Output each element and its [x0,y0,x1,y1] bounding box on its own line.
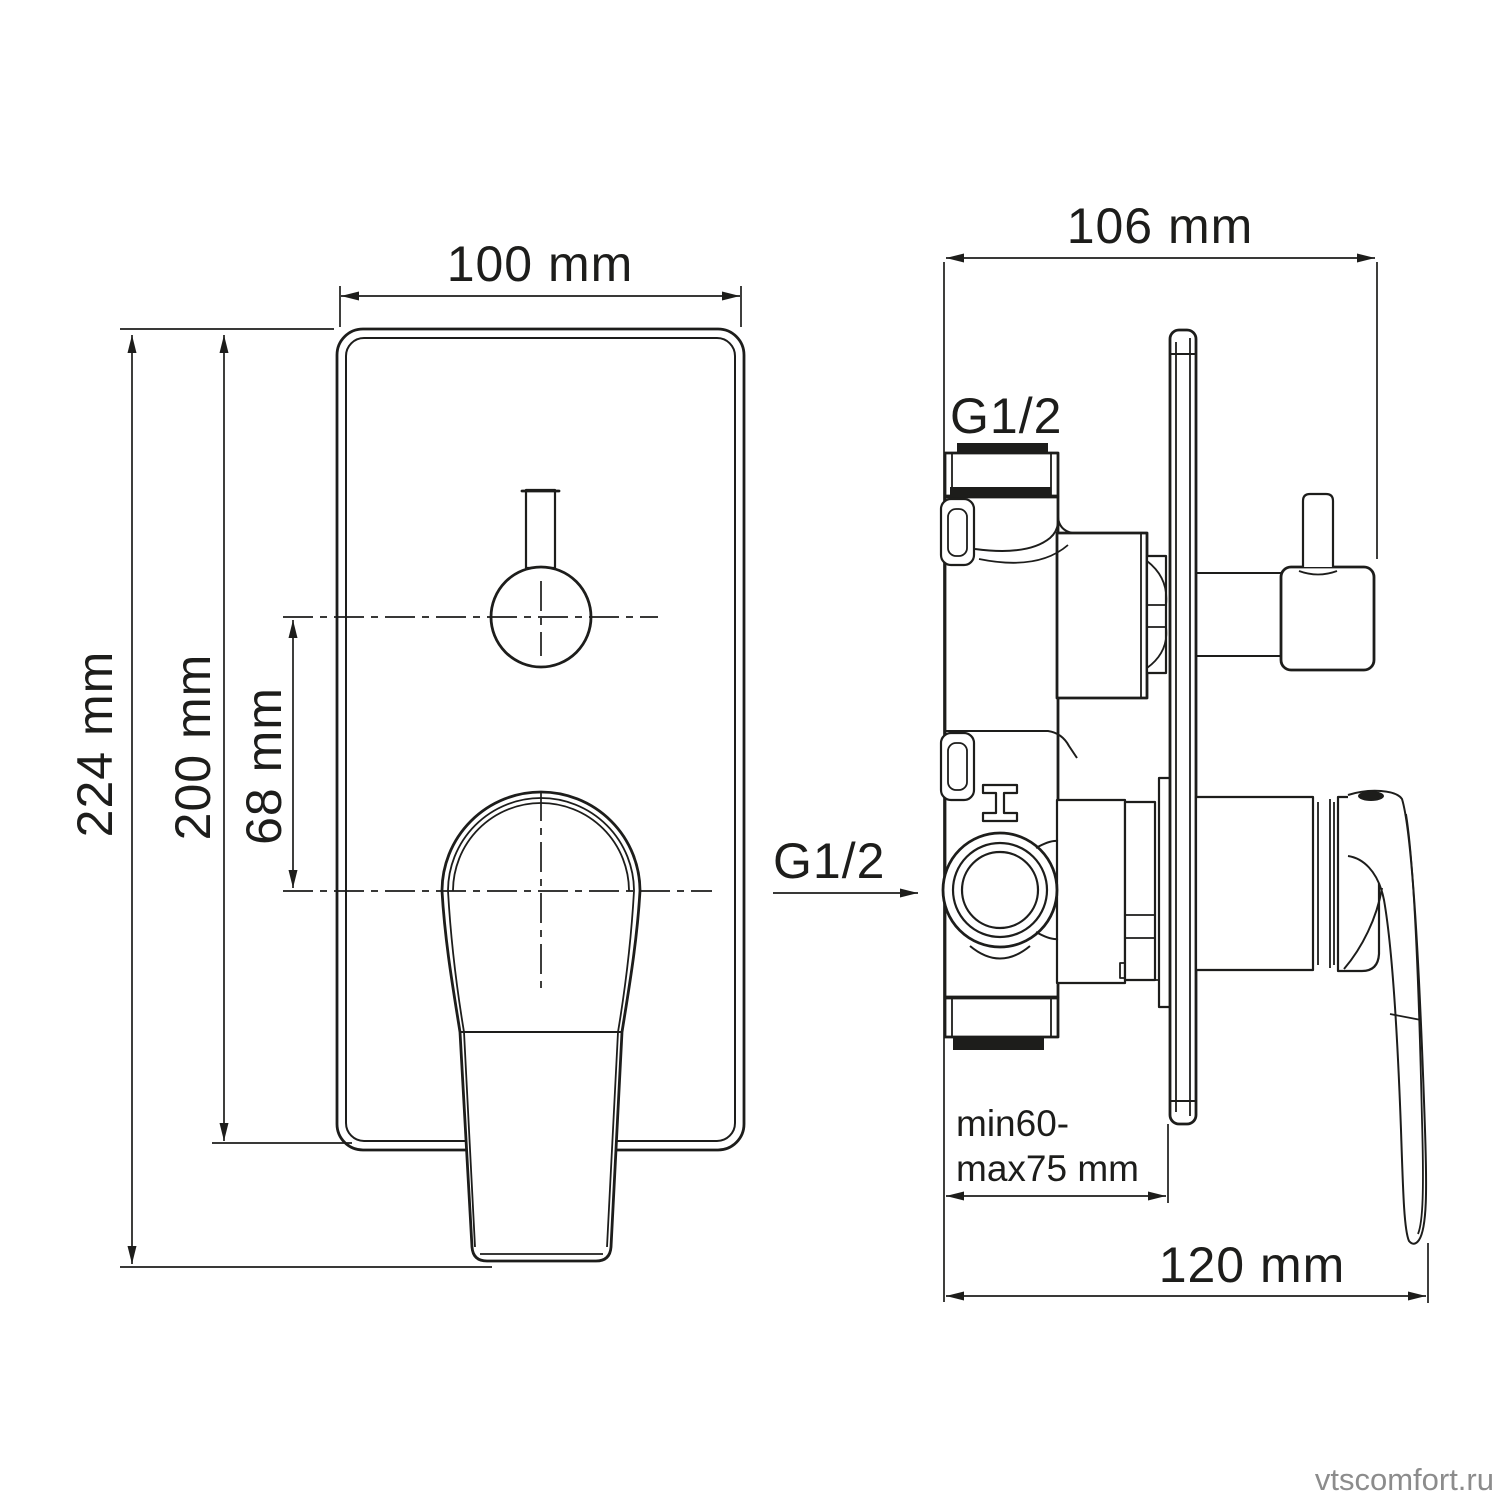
dim-wall-depth: min60- max75 mm [946,1103,1168,1203]
side-diverter-knob [1196,494,1374,670]
label-side-port-thread-group: G1/2 [773,833,918,893]
dim-knob-to-handle: 68 mm [236,620,293,888]
dim-label-total-height: 224 mm [67,651,123,838]
side-valve-body [941,443,1170,1050]
dim-overall-depth: 120 mm [946,1237,1428,1303]
label-side-port-thread: G1/2 [773,833,885,889]
side-view: G1/2 G1/2 106 mm min60- max75 mm 120 mm [773,198,1428,1303]
top-port [945,443,1058,496]
handle-top-indicator [1358,791,1384,801]
dim-label-plate-width: 100 mm [447,236,634,292]
side-lever-handle [1196,791,1426,1244]
watermark-text: vtscomfort.ru [1315,1462,1494,1497]
dim-label-depth-to-knob: 106 mm [1067,198,1254,254]
dim-label-overall-depth: 120 mm [1159,1237,1346,1293]
dim-label-knob-to-handle: 68 mm [236,687,292,845]
mixer-installation-diagram: 100 mm 224 mm 200 mm 68 mm [0,0,1500,1500]
technical-drawing-page: 100 mm 224 mm 200 mm 68 mm [0,0,1500,1500]
dim-plate-width: 100 mm [340,236,741,327]
dim-label-wall-depth-line2: max75 mm [956,1148,1139,1189]
bottom-port [945,998,1058,1050]
front-view: 100 mm 224 mm 200 mm 68 mm [67,236,744,1267]
label-top-port-thread: G1/2 [950,388,1062,444]
dim-label-wall-depth-line1: min60- [956,1103,1069,1144]
side-cover-plate [1170,330,1196,1124]
dim-label-plate-height: 200 mm [165,654,221,841]
